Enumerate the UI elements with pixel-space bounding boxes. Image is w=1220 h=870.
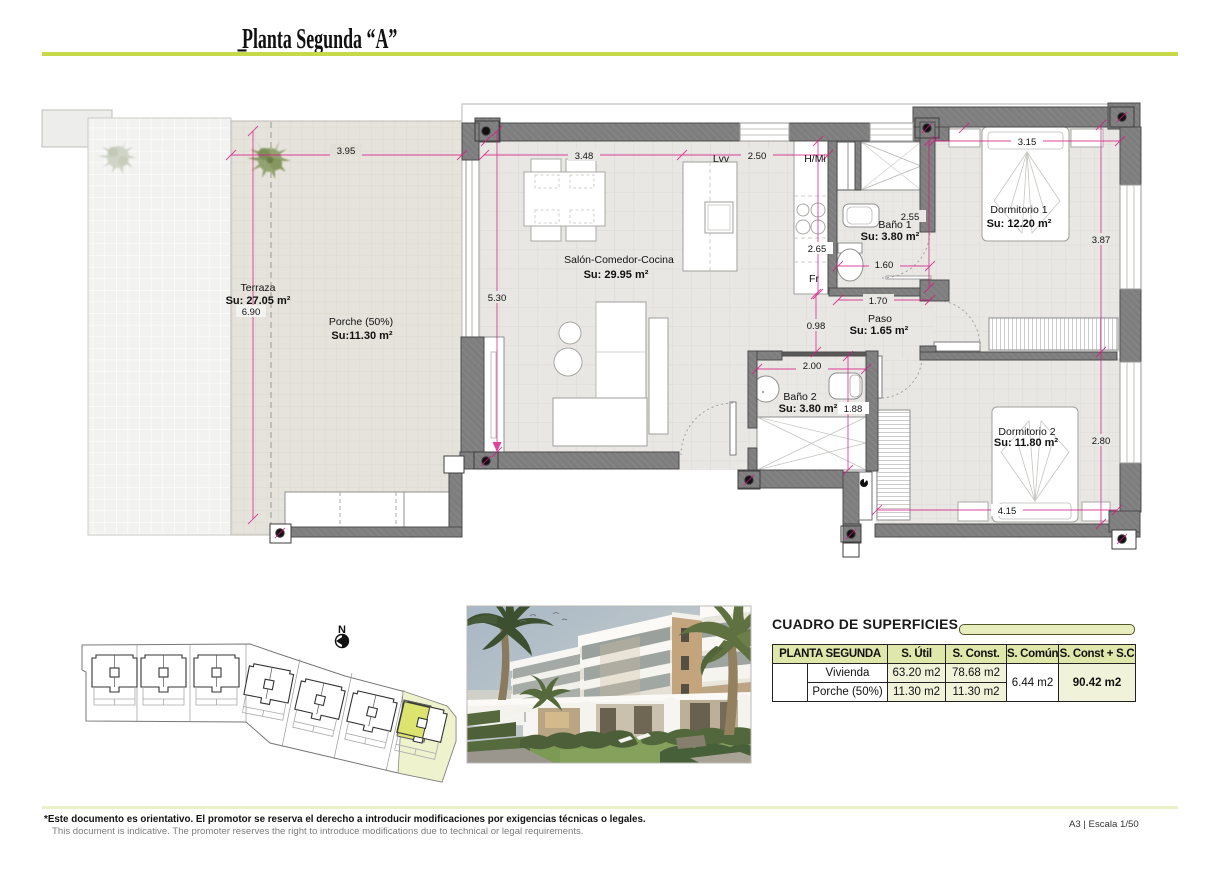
svg-text:2.00: 2.00 bbox=[803, 361, 822, 372]
svg-text:Lvv: Lvv bbox=[713, 153, 730, 165]
svg-text:Su:11.30 m²: Su:11.30 m² bbox=[331, 330, 392, 342]
svg-text:2.65: 2.65 bbox=[808, 244, 827, 255]
svg-text:H/Mi: H/Mi bbox=[804, 153, 826, 165]
svg-text:Su: 3.80 m²: Su: 3.80 m² bbox=[861, 231, 920, 243]
svg-text:3.15: 3.15 bbox=[1018, 137, 1037, 148]
svg-text:Fr: Fr bbox=[809, 273, 819, 285]
svg-text:3.87: 3.87 bbox=[1092, 235, 1111, 246]
svg-text:1.60: 1.60 bbox=[875, 260, 894, 271]
svg-text:Porche (50%): Porche (50%) bbox=[329, 316, 393, 328]
svg-text:5.30: 5.30 bbox=[488, 293, 507, 304]
svg-text:Salón-Comedor-Cocina: Salón-Comedor-Cocina bbox=[564, 254, 674, 266]
svg-text:0.98: 0.98 bbox=[807, 321, 826, 332]
svg-text:Su: 3.80 m²: Su: 3.80 m² bbox=[779, 403, 838, 415]
svg-text:2.80: 2.80 bbox=[1092, 436, 1111, 447]
svg-text:1.88: 1.88 bbox=[844, 404, 863, 415]
svg-text:Dormitorio 1: Dormitorio 1 bbox=[990, 204, 1047, 216]
svg-text:4.15: 4.15 bbox=[998, 506, 1017, 517]
svg-text:Su: 27.05 m²: Su: 27.05 m² bbox=[226, 295, 291, 307]
svg-text:6.90: 6.90 bbox=[242, 307, 261, 318]
svg-text:Baño 2: Baño 2 bbox=[783, 391, 816, 403]
svg-text:1.70: 1.70 bbox=[869, 296, 888, 307]
svg-text:Baño 1: Baño 1 bbox=[878, 219, 911, 231]
svg-text:Paso: Paso bbox=[868, 313, 892, 325]
svg-text:Terraza: Terraza bbox=[240, 282, 275, 294]
svg-text:3.48: 3.48 bbox=[575, 151, 594, 162]
svg-text:Su: 11.80 m²: Su: 11.80 m² bbox=[994, 437, 1059, 449]
svg-text:2.50: 2.50 bbox=[748, 151, 767, 162]
svg-text:Su: 29.95 m²: Su: 29.95 m² bbox=[584, 269, 649, 281]
svg-text:Su: 12.20 m²: Su: 12.20 m² bbox=[987, 218, 1052, 230]
svg-text:Su: 1.65 m²: Su: 1.65 m² bbox=[850, 325, 909, 337]
svg-text:3.95: 3.95 bbox=[337, 146, 356, 157]
